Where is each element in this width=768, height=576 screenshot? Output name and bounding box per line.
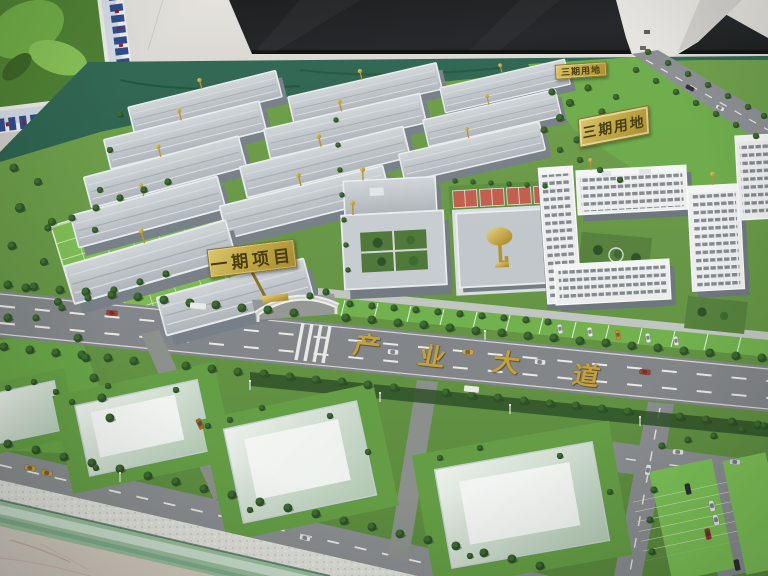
architectural-model-photo: 一期项目 三期用地 三期用地 产 业 大 道	[0, 0, 768, 576]
highrise-tower-far-east	[735, 134, 768, 220]
road-character-4: 道	[568, 361, 604, 391]
highrise-wing-south	[554, 259, 676, 312]
model-scene-graphics	[0, 0, 768, 576]
road-character-3: 大	[488, 348, 524, 378]
road-character-2: 业	[414, 342, 450, 372]
highrise-garden-2	[684, 296, 748, 334]
road-character-1: 产	[349, 331, 385, 361]
